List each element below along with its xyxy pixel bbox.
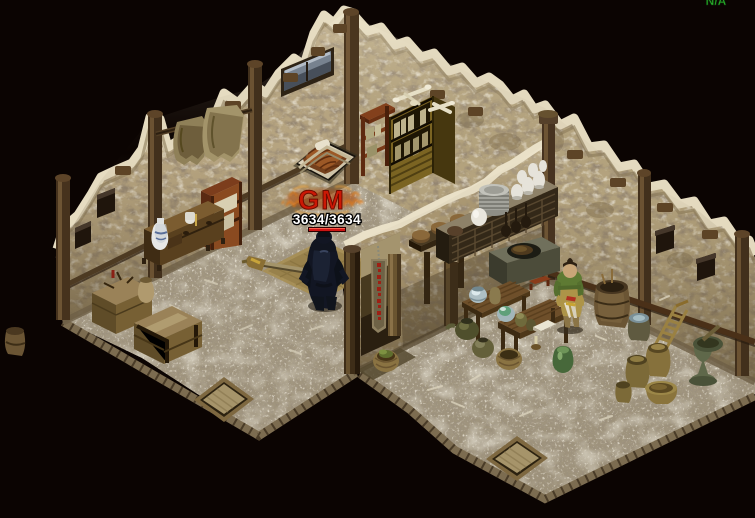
svg-text:GM: GM xyxy=(298,185,346,215)
svg-text:3634/3634: 3634/3634 xyxy=(293,212,361,227)
svg-text:N/A: N/A xyxy=(706,0,727,8)
